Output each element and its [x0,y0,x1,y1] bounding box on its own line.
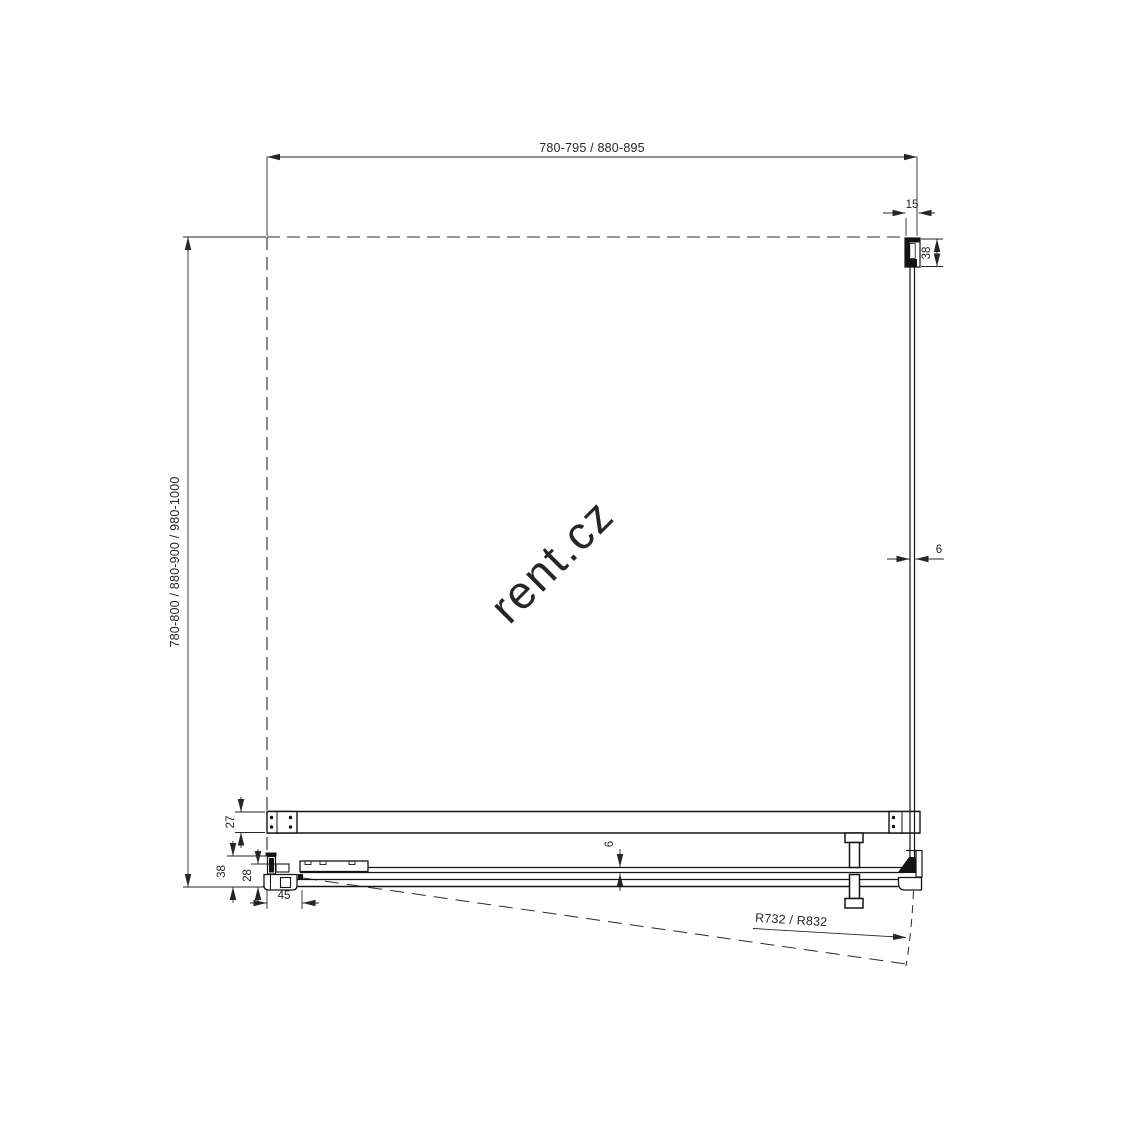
door-swing-radius-label: R732 / R832 [755,911,828,929]
rail-right-bracket [889,812,920,834]
door-handle [845,833,863,908]
corner-hinge-wedge [898,857,917,873]
enclosure-drawing-group [263,238,922,908]
top-rail-depth-label: 27 [225,816,237,829]
door-fitting-bar [300,861,368,872]
radius-leader-line [753,929,906,938]
sill-depth-label: 38 [216,865,228,878]
technical-drawing-page: rent.cz [0,0,1134,1134]
watermark-text: rent.cz [480,489,624,633]
door-swing-arc [906,891,914,966]
hinge-offset-label: 45 [278,890,291,902]
dashed-outline-group [267,237,914,966]
left-depth-label: 780-800 / 880-900 / 980-1000 [168,476,182,647]
wall-profile-bracket [905,238,920,267]
top-width-label: 780-795 / 880-895 [539,141,645,155]
door-pivot-point [298,874,303,879]
rail-left-bracket [267,812,297,834]
wall-profile-width-label: 15 [906,199,919,211]
door-glass-thickness-label: 6 [604,841,616,847]
left-hinge-assembly [264,853,303,891]
side-glass-thickness-label: 6 [936,544,942,556]
door-rail-depth-label: 28 [242,869,254,882]
shower-enclosure-plan-svg: rent.cz [0,0,1134,1134]
wall-profile-depth-label: 38 [921,247,933,260]
